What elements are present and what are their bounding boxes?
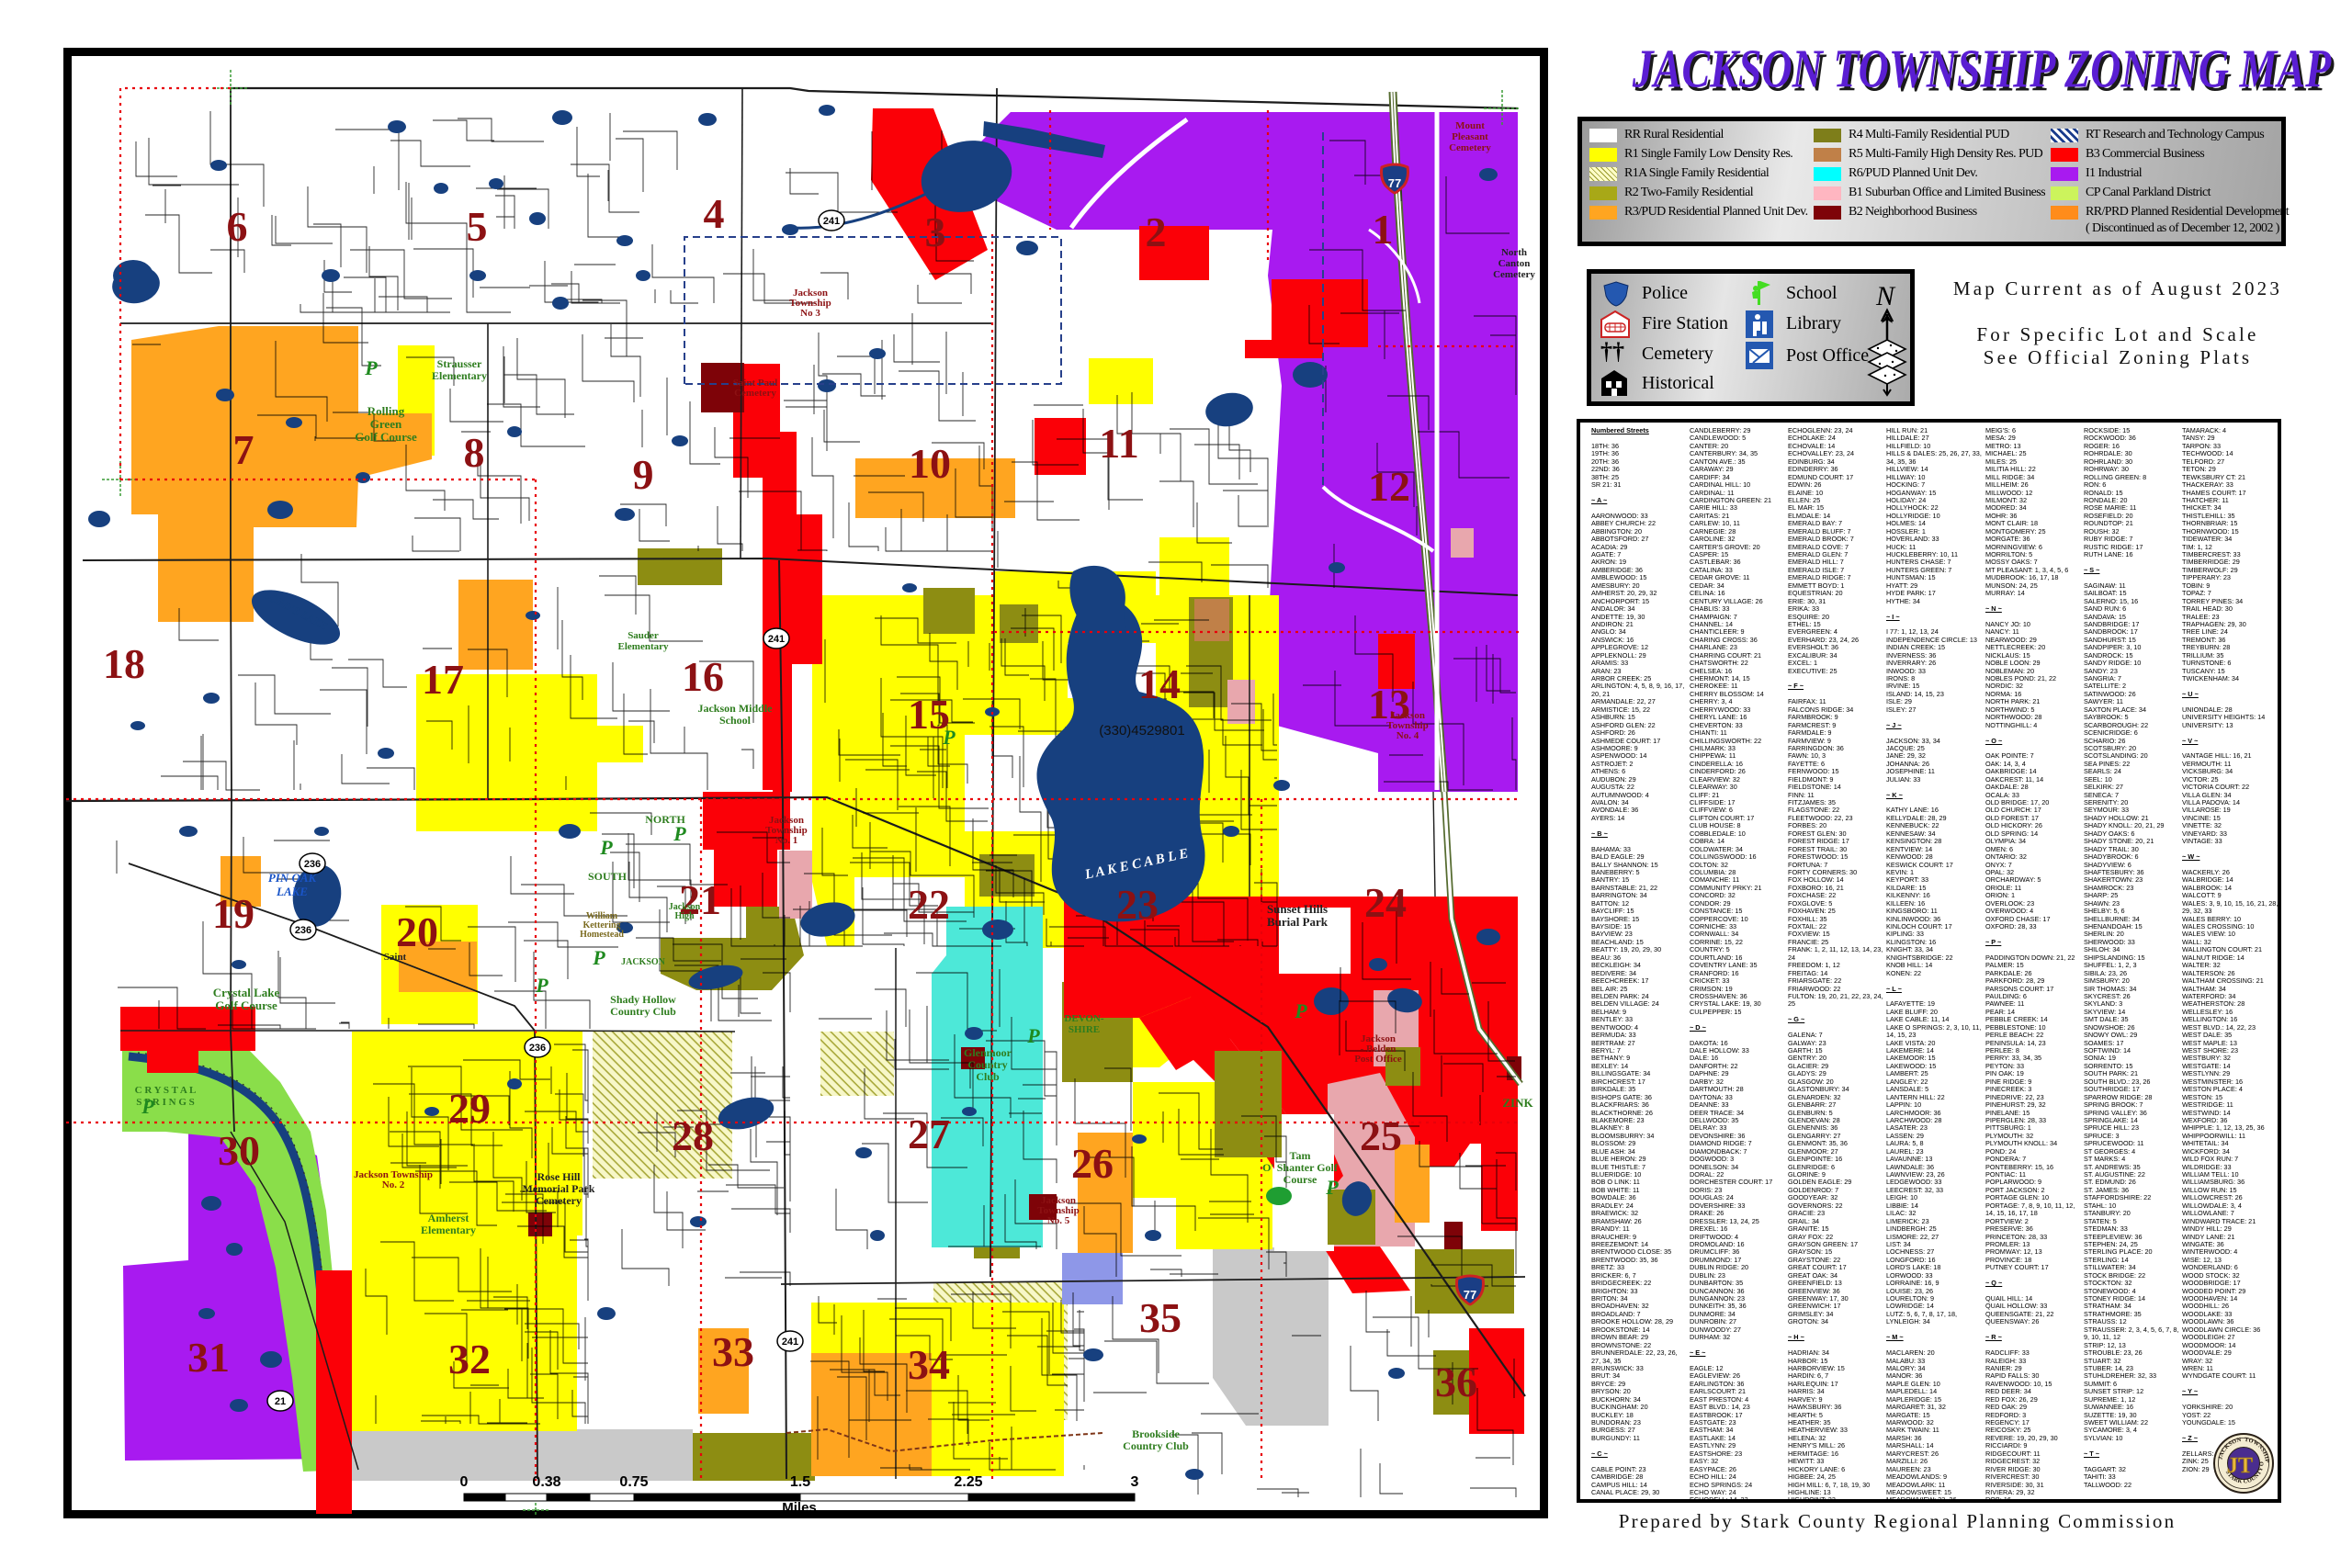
svg-text:LAKE: LAKE bbox=[276, 885, 308, 898]
svg-text:Miles: Miles bbox=[782, 1500, 817, 1516]
svg-text:14: 14 bbox=[1138, 660, 1181, 707]
svg-text:JT: JT bbox=[2227, 1454, 2253, 1478]
svg-text:Sunset Hills: Sunset Hills bbox=[1267, 902, 1328, 916]
svg-text:Glenmoor: Glenmoor bbox=[964, 1046, 1012, 1059]
svg-text:Cemetery: Cemetery bbox=[536, 1194, 582, 1207]
svg-text:Burial Park: Burial Park bbox=[1267, 915, 1329, 929]
svg-text:SHIRE: SHIRE bbox=[1069, 1024, 1100, 1035]
svg-text:ZINK: ZINK bbox=[1502, 1096, 1533, 1110]
svg-text:NORTH: NORTH bbox=[645, 813, 685, 826]
svg-text:Green: Green bbox=[370, 417, 402, 431]
svg-text:Tam: Tam bbox=[1290, 1149, 1311, 1162]
svg-text:22: 22 bbox=[908, 881, 950, 928]
svg-text:36: 36 bbox=[1435, 1359, 1477, 1405]
svg-text:Post Office: Post Office bbox=[1354, 1054, 1402, 1065]
svg-text:32: 32 bbox=[448, 1336, 491, 1382]
svg-text:P: P bbox=[535, 974, 548, 997]
svg-text:Memorial Park: Memorial Park bbox=[523, 1182, 595, 1195]
svg-text:Elementary: Elementary bbox=[421, 1224, 476, 1236]
svg-text:P: P bbox=[364, 356, 378, 379]
svg-text:20: 20 bbox=[396, 908, 438, 955]
svg-text:19: 19 bbox=[212, 890, 254, 937]
svg-text:P: P bbox=[1294, 999, 1307, 1022]
svg-text:10: 10 bbox=[909, 440, 951, 487]
svg-text:No. 1: No. 1 bbox=[775, 835, 797, 846]
svg-text:3: 3 bbox=[1131, 1474, 1139, 1490]
svg-text:21: 21 bbox=[275, 1396, 286, 1407]
svg-text:2.25: 2.25 bbox=[954, 1474, 982, 1490]
svg-text:11: 11 bbox=[1099, 420, 1138, 467]
svg-text:Strausser: Strausser bbox=[437, 357, 482, 370]
svg-text:N: N bbox=[1875, 283, 1896, 311]
svg-text:77: 77 bbox=[1388, 176, 1401, 190]
svg-text:24: 24 bbox=[1364, 879, 1407, 926]
svg-text:9: 9 bbox=[633, 451, 654, 498]
svg-text:Country Club: Country Club bbox=[610, 1005, 676, 1018]
svg-text:16: 16 bbox=[682, 653, 724, 700]
svg-text:Saint: Saint bbox=[384, 952, 407, 963]
svg-text:236: 236 bbox=[295, 925, 311, 936]
svg-text:5: 5 bbox=[467, 203, 488, 250]
svg-text:P: P bbox=[942, 726, 955, 749]
svg-text:Cemetery: Cemetery bbox=[734, 388, 776, 399]
svg-text:3: 3 bbox=[925, 209, 946, 255]
svg-text:4: 4 bbox=[704, 190, 725, 237]
svg-text:Pleasant: Pleasant bbox=[1452, 131, 1488, 142]
svg-text:Rolling: Rolling bbox=[367, 404, 405, 418]
svg-text:Cemetery: Cemetery bbox=[1493, 269, 1535, 280]
svg-text:Rose Hill: Rose Hill bbox=[537, 1170, 582, 1183]
svg-text:Canton: Canton bbox=[1498, 258, 1531, 269]
svg-text:Country Club: Country Club bbox=[1123, 1439, 1189, 1452]
svg-text:0: 0 bbox=[460, 1474, 469, 1490]
svg-text:(330)4529801: (330)4529801 bbox=[1099, 723, 1184, 739]
svg-text:Shady Hollow: Shady Hollow bbox=[610, 993, 676, 1006]
svg-text:No. 5: No. 5 bbox=[1047, 1215, 1070, 1226]
svg-text:241: 241 bbox=[768, 634, 785, 645]
svg-text:Crystal Lake: Crystal Lake bbox=[213, 986, 280, 999]
svg-text:P: P bbox=[1325, 1176, 1339, 1199]
svg-text:Elementary: Elementary bbox=[432, 369, 487, 382]
svg-text:1: 1 bbox=[1373, 206, 1394, 253]
svg-text:25: 25 bbox=[1360, 1112, 1402, 1159]
svg-text:241: 241 bbox=[782, 1337, 798, 1348]
svg-text:28: 28 bbox=[672, 1112, 714, 1159]
svg-text:Jackson Middle: Jackson Middle bbox=[697, 702, 773, 715]
svg-text:27: 27 bbox=[908, 1111, 950, 1157]
svg-text:12: 12 bbox=[1368, 463, 1410, 510]
svg-text:236: 236 bbox=[304, 859, 321, 870]
svg-text:26: 26 bbox=[1071, 1140, 1114, 1187]
svg-text:17: 17 bbox=[422, 656, 464, 703]
svg-text:Mount: Mount bbox=[1455, 120, 1485, 131]
svg-text:School: School bbox=[719, 714, 752, 727]
svg-text:Golf Course: Golf Course bbox=[355, 430, 417, 444]
svg-text:High: High bbox=[674, 911, 695, 921]
svg-text:34: 34 bbox=[908, 1341, 950, 1388]
svg-text:33: 33 bbox=[712, 1328, 754, 1375]
svg-text:1.5: 1.5 bbox=[790, 1474, 810, 1490]
svg-text:SOUTH: SOUTH bbox=[588, 870, 628, 883]
svg-text:P: P bbox=[1026, 1024, 1040, 1047]
svg-text:29: 29 bbox=[448, 1085, 491, 1132]
svg-text:236: 236 bbox=[529, 1043, 546, 1054]
svg-text:No 3: No 3 bbox=[800, 308, 820, 319]
svg-text:P: P bbox=[592, 946, 605, 969]
svg-text:Sauder: Sauder bbox=[628, 630, 659, 641]
svg-text:35: 35 bbox=[1139, 1294, 1182, 1341]
svg-text:Homestead: Homestead bbox=[580, 930, 624, 940]
svg-text:8: 8 bbox=[464, 429, 485, 476]
svg-text:No. 4: No. 4 bbox=[1396, 730, 1419, 741]
svg-text:18: 18 bbox=[103, 640, 145, 687]
svg-text:0.75: 0.75 bbox=[619, 1474, 648, 1490]
svg-text:Amherst: Amherst bbox=[428, 1212, 469, 1224]
svg-text:North: North bbox=[1501, 247, 1527, 258]
svg-text:30: 30 bbox=[218, 1127, 260, 1174]
svg-text:6: 6 bbox=[227, 203, 248, 250]
svg-text:31: 31 bbox=[187, 1334, 230, 1381]
svg-text:P: P bbox=[599, 836, 613, 859]
svg-text:P: P bbox=[141, 1095, 154, 1118]
svg-text:Brookside: Brookside bbox=[1132, 1427, 1180, 1440]
svg-text:Cemetery: Cemetery bbox=[1449, 142, 1491, 153]
svg-text:23: 23 bbox=[1116, 881, 1159, 928]
svg-text:Club: Club bbox=[976, 1070, 1000, 1083]
svg-text:7: 7 bbox=[233, 426, 254, 473]
svg-text:77: 77 bbox=[1464, 1288, 1476, 1302]
svg-text:2: 2 bbox=[1146, 209, 1167, 255]
svg-text:JACKSON: JACKSON bbox=[621, 957, 666, 967]
svg-text:O' Shanter Golf: O' Shanter Golf bbox=[1262, 1161, 1339, 1174]
svg-text:241: 241 bbox=[823, 216, 840, 227]
svg-text:No. 2: No. 2 bbox=[382, 1179, 405, 1190]
svg-text:Course: Course bbox=[1283, 1173, 1317, 1186]
svg-text:DEVON-: DEVON- bbox=[1064, 1013, 1104, 1024]
svg-text:Elementary: Elementary bbox=[618, 641, 669, 652]
svg-text:Country: Country bbox=[967, 1058, 1007, 1071]
svg-text:0.38: 0.38 bbox=[532, 1474, 560, 1490]
svg-text:Golf Course: Golf Course bbox=[215, 998, 277, 1012]
